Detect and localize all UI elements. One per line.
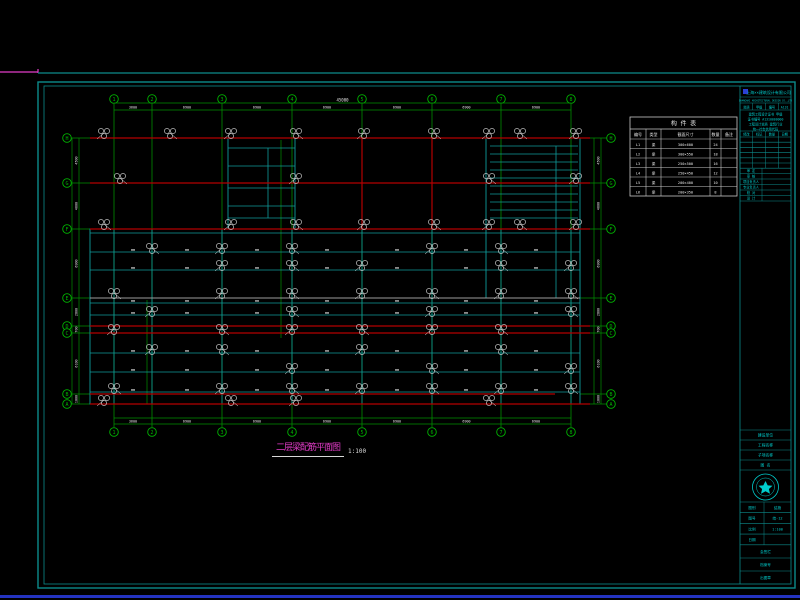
svg-text:梁: 梁 <box>652 180 656 185</box>
svg-text:G: G <box>609 181 612 187</box>
svg-text:5: 5 <box>360 430 363 436</box>
svg-text:图 名: 图 名 <box>761 463 771 468</box>
svg-text:7: 7 <box>499 97 502 103</box>
svg-text:标记: 标记 <box>756 132 763 137</box>
svg-text:200×400: 200×400 <box>678 181 693 185</box>
svg-text:F: F <box>609 227 612 233</box>
svg-text:18: 18 <box>713 153 717 157</box>
svg-text:证书编号 A1310000000: 证书编号 A1310000000 <box>748 117 784 122</box>
svg-text:梁: 梁 <box>652 190 656 195</box>
svg-text:L6: L6 <box>636 191 640 195</box>
svg-text:类型: 类型 <box>650 131 658 137</box>
svg-text:6900: 6900 <box>462 106 470 110</box>
svg-text:会签栏: 会签栏 <box>760 549 771 554</box>
svg-text:审 定: 审 定 <box>747 168 756 173</box>
svg-text:建筑工程设计证书 甲级: 建筑工程设计证书 甲级 <box>749 112 784 117</box>
svg-text:SHANGHAI ARCHITECTURAL DESIGN: SHANGHAI ARCHITECTURAL DESIGN CO.,LTD <box>739 100 793 103</box>
svg-text:E: E <box>65 296 68 302</box>
svg-text:2: 2 <box>150 430 153 436</box>
svg-text:A: A <box>65 402 68 408</box>
svg-text:日期: 日期 <box>781 132 787 137</box>
svg-text:6900: 6900 <box>393 106 401 110</box>
svg-text:6: 6 <box>430 97 433 103</box>
cad-viewport[interactable]: 1122334455667788HHGGFFEEDDCCBBAA36006900… <box>0 0 800 600</box>
beam-dim-ticks <box>131 249 538 390</box>
svg-text:数量: 数量 <box>712 131 720 137</box>
svg-text:校 对: 校 对 <box>747 190 756 195</box>
member-table: 构 件 表编号类型截面尺寸数量备注L1梁300×60024L2梁300×5501… <box>630 117 737 196</box>
svg-text:截面尺寸: 截面尺寸 <box>678 131 694 137</box>
svg-text:审 核: 审 核 <box>747 174 756 179</box>
svg-text:设 计: 设 计 <box>747 196 756 201</box>
svg-text:6900: 6900 <box>462 420 470 424</box>
svg-text:修改: 修改 <box>743 132 750 137</box>
svg-text:700: 700 <box>75 326 79 332</box>
svg-text:6900: 6900 <box>253 420 261 424</box>
svg-text:档案号: 档案号 <box>760 562 771 567</box>
svg-text:图号: 图号 <box>748 516 756 521</box>
svg-text:工程设计资质 建筑行业: 工程设计资质 建筑行业 <box>749 122 783 127</box>
svg-text:4: 4 <box>290 97 293 103</box>
svg-text:H: H <box>609 136 612 142</box>
svg-text:16: 16 <box>713 162 717 166</box>
svg-text:6900: 6900 <box>323 106 331 110</box>
svg-text:3: 3 <box>220 430 223 436</box>
svg-text:建设单位: 建设单位 <box>758 433 773 438</box>
svg-text:3600: 3600 <box>129 420 137 424</box>
svg-text:1:100: 1:100 <box>772 527 783 531</box>
svg-text:梁: 梁 <box>652 171 656 176</box>
svg-text:F: F <box>65 227 68 233</box>
svg-text:图别: 图别 <box>748 505 756 510</box>
svg-text:比例: 比例 <box>748 526 756 531</box>
svg-text:6900: 6900 <box>75 259 79 267</box>
title-block: 上海××建筑设计有限公司SHANGHAI ARCHITECTURAL DESIG… <box>739 89 793 580</box>
svg-text:4600: 4600 <box>597 202 601 210</box>
svg-text:1: 1 <box>112 430 115 436</box>
svg-text:结-12: 结-12 <box>772 516 782 521</box>
svg-text:日期: 日期 <box>748 537 756 542</box>
svg-text:12: 12 <box>713 172 717 176</box>
svg-text:300×550: 300×550 <box>678 153 693 157</box>
svg-text:3600: 3600 <box>129 106 137 110</box>
svg-text:2: 2 <box>150 97 153 103</box>
drawing-scale-label: 1:100 <box>348 448 366 455</box>
svg-text:6900: 6900 <box>532 420 540 424</box>
svg-text:甲级: 甲级 <box>756 104 763 109</box>
svg-text:L5: L5 <box>636 181 640 185</box>
svg-text:备注: 备注 <box>725 131 733 137</box>
beam-lines <box>90 138 590 404</box>
svg-text:2800: 2800 <box>597 308 601 316</box>
svg-text:200×350: 200×350 <box>678 191 693 195</box>
svg-text:8: 8 <box>714 191 716 195</box>
svg-text:6900: 6900 <box>183 420 191 424</box>
cad-drawing-canvas: 1122334455667788HHGGFFEEDDCCBBAA36006900… <box>0 0 800 600</box>
svg-text:L4: L4 <box>636 172 640 176</box>
svg-text:1: 1 <box>112 97 115 103</box>
svg-text:A131: A131 <box>781 105 789 109</box>
svg-text:300×600: 300×600 <box>678 143 693 147</box>
svg-text:C: C <box>65 331 68 337</box>
svg-text:4: 4 <box>290 430 293 436</box>
svg-text:梁: 梁 <box>652 161 656 166</box>
svg-text:编号: 编号 <box>634 131 642 137</box>
svg-text:构 件 表: 构 件 表 <box>671 120 696 128</box>
svg-text:6100: 6100 <box>597 359 601 367</box>
svg-text:结施: 结施 <box>774 505 782 510</box>
svg-text:4600: 4600 <box>75 202 79 210</box>
svg-text:24: 24 <box>713 143 717 147</box>
svg-text:700: 700 <box>597 326 601 332</box>
svg-text:上海××建筑设计有限公司: 上海××建筑设计有限公司 <box>746 89 791 95</box>
svg-text:3: 3 <box>220 97 223 103</box>
svg-text:4500: 4500 <box>597 156 601 164</box>
status-strip <box>0 595 800 598</box>
svg-text:10: 10 <box>713 181 717 185</box>
svg-text:梁: 梁 <box>652 142 656 147</box>
svg-text:8: 8 <box>569 430 572 436</box>
svg-text:资质: 资质 <box>743 104 750 109</box>
svg-text:1000: 1000 <box>75 395 79 403</box>
svg-text:6900: 6900 <box>253 106 261 110</box>
svg-text:B: B <box>65 392 68 398</box>
drawing-title: 二层梁配筋平面图 <box>272 442 344 457</box>
svg-text:G: G <box>65 181 68 187</box>
svg-text:H: H <box>65 136 68 142</box>
svg-text:6900: 6900 <box>532 106 540 110</box>
svg-text:6900: 6900 <box>183 106 191 110</box>
svg-text:45000: 45000 <box>336 98 349 103</box>
svg-text:编号: 编号 <box>769 104 775 109</box>
svg-text:5: 5 <box>360 97 363 103</box>
svg-text:6900: 6900 <box>323 420 331 424</box>
svg-text:C: C <box>609 331 612 337</box>
svg-text:6100: 6100 <box>75 359 79 367</box>
svg-text:6900: 6900 <box>393 420 401 424</box>
svg-text:8: 8 <box>569 97 572 103</box>
svg-text:1000: 1000 <box>597 395 601 403</box>
svg-text:E: E <box>609 296 612 302</box>
svg-text:子项名称: 子项名称 <box>758 453 773 458</box>
svg-text:250×450: 250×450 <box>678 172 693 176</box>
svg-text:6900: 6900 <box>597 259 601 267</box>
svg-text:出图章: 出图章 <box>760 575 771 580</box>
svg-text:L2: L2 <box>636 153 640 157</box>
svg-text:专业负责人: 专业负责人 <box>743 185 760 190</box>
svg-text:工程名称: 工程名称 <box>758 443 773 448</box>
svg-text:数量: 数量 <box>769 132 776 137</box>
svg-text:4500: 4500 <box>75 156 79 164</box>
dimension-lines: 3600690069006900690069006900450003600690… <box>72 98 601 425</box>
svg-text:B: B <box>609 392 612 398</box>
svg-text:7: 7 <box>499 430 502 436</box>
svg-text:6: 6 <box>430 430 433 436</box>
svg-text:A: A <box>609 402 612 408</box>
svg-text:L1: L1 <box>636 143 640 147</box>
svg-text:L3: L3 <box>636 162 640 166</box>
svg-text:梁: 梁 <box>652 152 656 157</box>
svg-text:2800: 2800 <box>75 308 79 316</box>
svg-text:250×500: 250×500 <box>678 162 693 166</box>
svg-text:项目负责人: 项目负责人 <box>743 179 760 184</box>
